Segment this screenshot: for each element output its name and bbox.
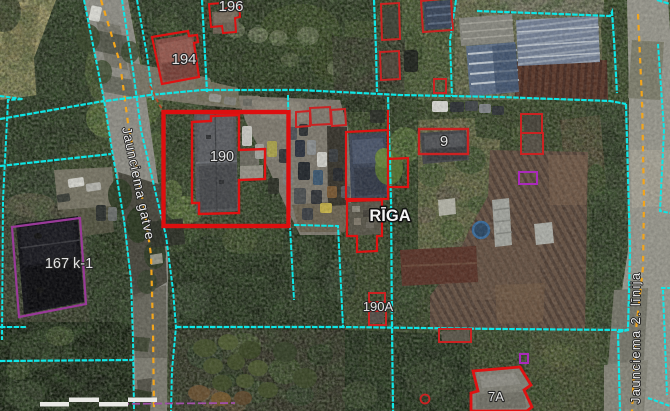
svg-text:196: 196: [218, 0, 243, 15]
svg-text:7A: 7A: [488, 389, 504, 404]
svg-text:190: 190: [210, 149, 234, 165]
svg-text:194: 194: [171, 51, 196, 68]
svg-text:190A: 190A: [363, 299, 394, 314]
svg-text:9: 9: [440, 133, 448, 150]
svg-text:Jaunciema 2. līnija: Jaunciema 2. līnija: [628, 272, 643, 404]
svg-text:167 k-1: 167 k-1: [45, 256, 93, 272]
svg-text:RĪGA: RĪGA: [369, 206, 410, 225]
